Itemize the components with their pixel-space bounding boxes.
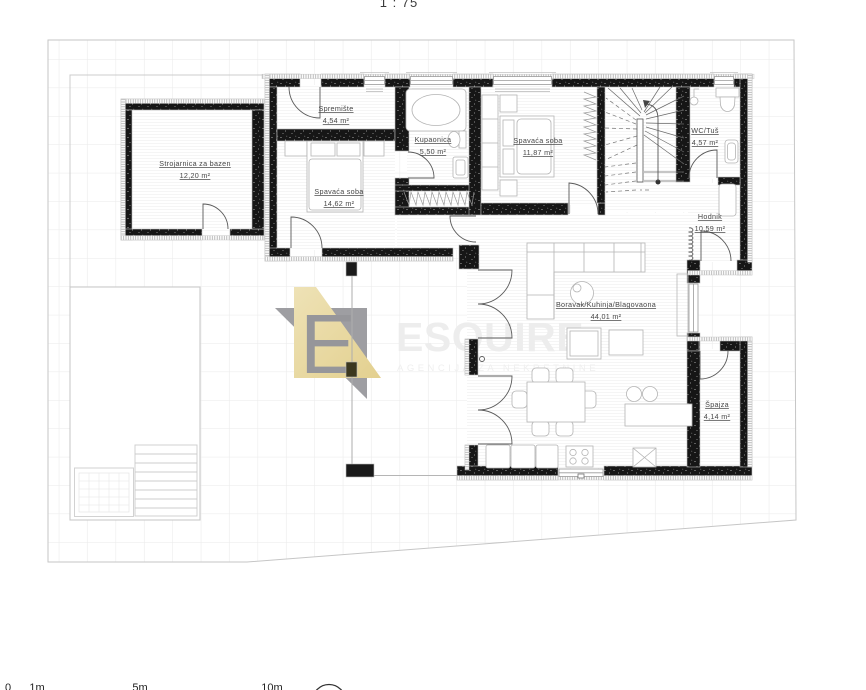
svg-text:0: 0	[5, 682, 11, 690]
svg-text:ESQUIRE: ESQUIRE	[396, 314, 584, 360]
svg-text:10,59 m²: 10,59 m²	[695, 224, 726, 233]
svg-text:1 : 75: 1 : 75	[380, 0, 419, 10]
svg-text:4,54 m²: 4,54 m²	[323, 116, 350, 125]
svg-text:11,87 m²: 11,87 m²	[523, 148, 554, 157]
svg-text:Spavaća soba: Spavaća soba	[314, 187, 363, 196]
svg-text:10m: 10m	[261, 682, 282, 690]
svg-text:Hodnik: Hodnik	[698, 212, 722, 221]
svg-text:WC/Tuš: WC/Tuš	[691, 126, 719, 135]
svg-text:1m: 1m	[29, 682, 44, 690]
svg-text:Boravak/Kuhinja/Blagovaona: Boravak/Kuhinja/Blagovaona	[556, 300, 656, 309]
svg-text:4,57 m²: 4,57 m²	[692, 138, 719, 147]
svg-text:5,50 m²: 5,50 m²	[420, 147, 447, 156]
svg-text:44,01 m²: 44,01 m²	[591, 312, 622, 321]
svg-text:Spavaća soba: Spavaća soba	[513, 136, 562, 145]
svg-text:Špajza: Špajza	[705, 400, 729, 409]
svg-text:12,20 m²: 12,20 m²	[180, 171, 211, 180]
svg-text:5m: 5m	[132, 682, 147, 690]
svg-text:4,14 m²: 4,14 m²	[704, 412, 731, 421]
svg-text:Spremište: Spremište	[318, 104, 353, 113]
svg-text:14,62 m²: 14,62 m²	[324, 199, 355, 208]
svg-text:Strojarnica za bazen: Strojarnica za bazen	[159, 159, 231, 168]
svg-text:Kupaonica: Kupaonica	[415, 135, 452, 144]
